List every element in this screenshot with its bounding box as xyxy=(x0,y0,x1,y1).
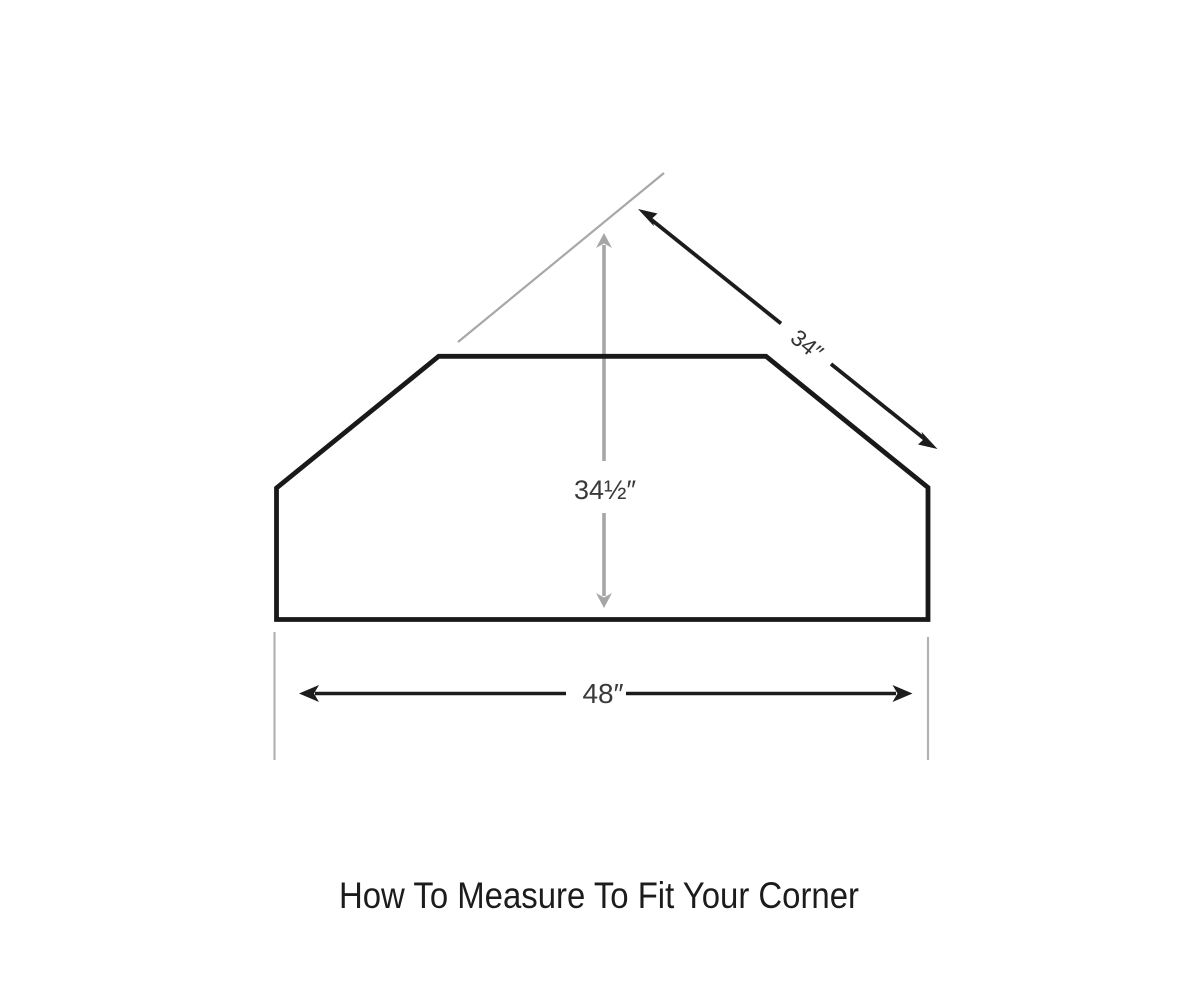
svg-text:48″: 48″ xyxy=(582,678,623,709)
svg-text:34½″: 34½″ xyxy=(574,475,637,505)
svg-text:34″: 34″ xyxy=(786,324,829,365)
svg-text:How To Measure To Fit Your Cor: How To Measure To Fit Your Corner xyxy=(339,874,859,916)
